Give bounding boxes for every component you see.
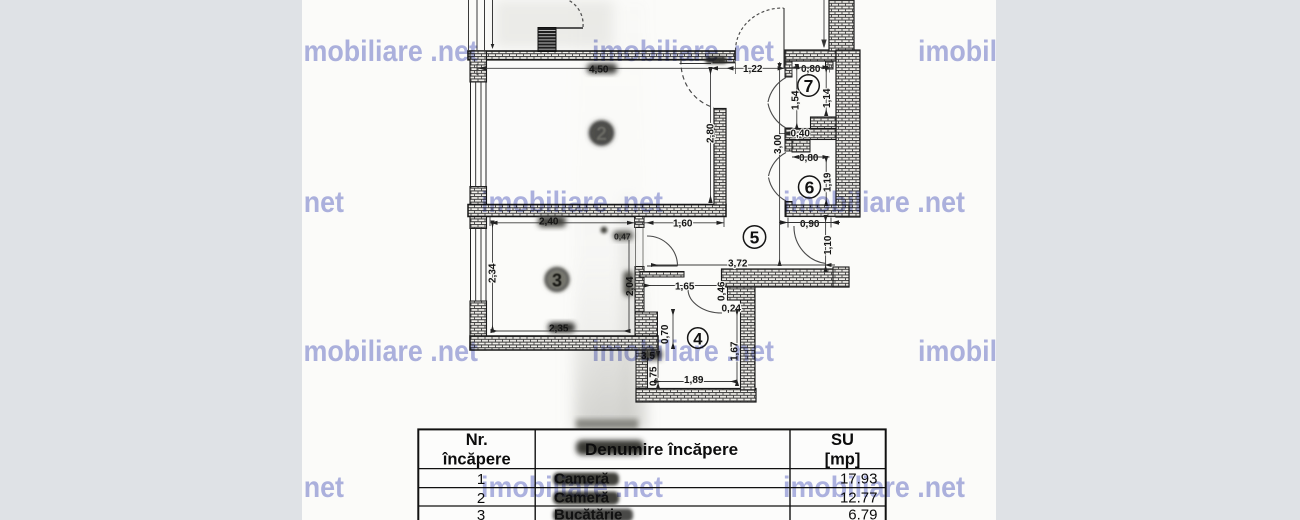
svg-text:2,04: 2,04	[625, 276, 636, 296]
svg-text:1,14: 1,14	[822, 88, 833, 108]
svg-text:3: 3	[552, 271, 562, 291]
svg-text:1,54: 1,54	[791, 90, 802, 110]
svg-text:2: 2	[596, 124, 607, 145]
svg-text:1,60: 1,60	[673, 219, 693, 230]
svg-text:Bucătărie: Bucătărie	[554, 507, 622, 520]
svg-text:SU: SU	[831, 431, 854, 449]
svg-text:6.79: 6.79	[848, 507, 877, 520]
svg-text:3,72: 3,72	[728, 259, 748, 270]
svg-text:3,00: 3,00	[773, 134, 784, 154]
svg-text:2,34: 2,34	[488, 263, 499, 283]
svg-text:Nr.: Nr.	[466, 431, 488, 449]
svg-text:0,80: 0,80	[799, 153, 819, 164]
svg-text:1,89: 1,89	[684, 375, 704, 386]
svg-text:0,47: 0,47	[614, 232, 631, 242]
svg-text:imobiliare .net: imobiliare .net	[592, 335, 774, 368]
svg-text:încăpere: încăpere	[442, 451, 511, 469]
svg-text:7: 7	[804, 76, 814, 96]
svg-text:imobiliare .net: imobiliare .net	[296, 35, 478, 68]
svg-text:2,80: 2,80	[706, 123, 717, 143]
svg-text:0,90: 0,90	[800, 219, 820, 230]
svg-text:0,46: 0,46	[717, 281, 728, 301]
svg-text:imobiliare .net: imobiliare .net	[783, 186, 965, 219]
svg-text:1,65: 1,65	[675, 282, 695, 293]
svg-text:[mp]: [mp]	[825, 451, 861, 469]
svg-text:0,40: 0,40	[791, 129, 811, 140]
svg-text:5: 5	[750, 228, 760, 248]
svg-text:1,10: 1,10	[823, 235, 834, 255]
svg-text:imobiliare .net: imobiliare .net	[783, 471, 965, 504]
svg-text:0,80: 0,80	[801, 64, 821, 75]
svg-text:imobiliare .net: imobiliare .net	[592, 35, 774, 68]
svg-text:2,35: 2,35	[549, 324, 569, 335]
svg-text:3: 3	[477, 507, 485, 520]
svg-text:Denumire încăpere: Denumire încăpere	[585, 440, 738, 459]
svg-text:imobiliare .net: imobiliare .net	[481, 471, 663, 504]
svg-text:imobiliare .net: imobiliare .net	[481, 186, 663, 219]
svg-text:imobiliare .net: imobiliare .net	[296, 335, 478, 368]
